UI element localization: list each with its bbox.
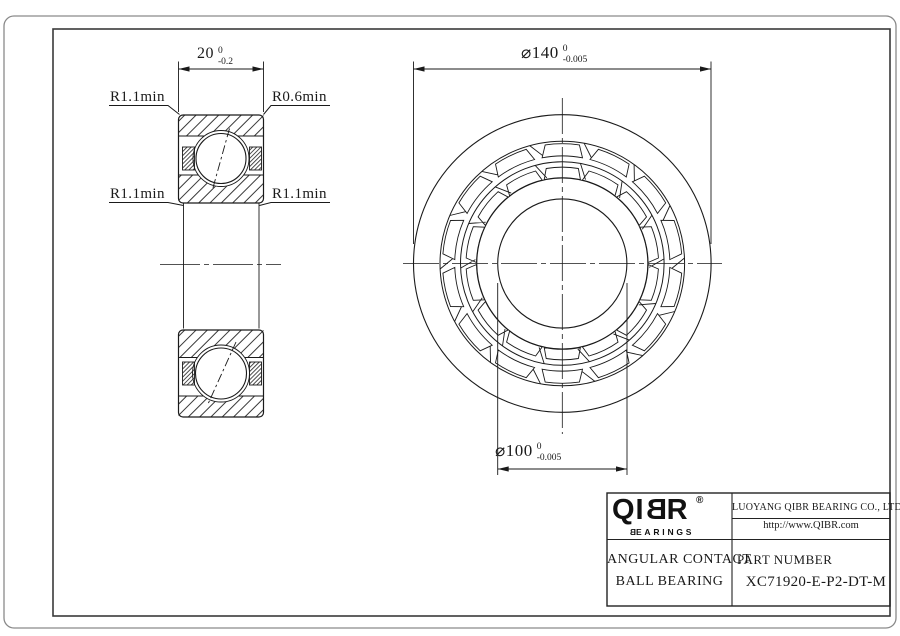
arrowhead-right	[616, 466, 627, 471]
tolerance-lower: -0.005	[537, 453, 562, 464]
cage-section-bottom-right	[250, 362, 262, 385]
product-name-line1: ANGULAR CONTACT	[607, 553, 732, 567]
tolerance-upper: 0	[563, 44, 588, 55]
section-top-block	[179, 115, 264, 203]
company-website: http://www.QIBR.com	[732, 521, 890, 532]
logo-text: QI	[612, 494, 645, 526]
ball-bottom	[196, 348, 247, 399]
company-name: LUOYANG QIBR BEARING CO., LTD	[732, 503, 890, 513]
od-dimension-text: ⌀140 0 -0.005	[521, 44, 587, 66]
arrowhead-left	[179, 66, 190, 71]
cage-section-top-left	[183, 147, 195, 170]
part-number-value: XC71920-E-P2-DT-M	[742, 575, 890, 590]
front-view	[403, 62, 722, 476]
registered-mark: ®	[696, 496, 703, 506]
part-number-label: PART NUMBER	[737, 553, 832, 566]
drawing-sheet: 20 0 -0.2 R1.1min R0.6min R1.1min R1.1mi…	[0, 0, 900, 636]
arrowhead-right	[253, 66, 264, 71]
section-view	[109, 62, 330, 418]
arrowhead-right	[700, 66, 711, 71]
radius-label-top-right: R0.6min	[272, 90, 327, 105]
dimension-value: 20	[197, 46, 214, 62]
radius-label-top-left: R1.1min	[110, 90, 165, 105]
width-dimension-text: 20 0 -0.2	[197, 46, 233, 68]
logo-sub-text: EARINGS	[636, 527, 694, 537]
brand-logo: QIBR ® BEARINGS	[612, 496, 694, 537]
tolerance-upper: 0	[537, 442, 562, 453]
sheet-border	[4, 16, 896, 628]
tolerance-lower: -0.2	[218, 57, 233, 68]
logo-subtitle: BEARINGS	[627, 528, 694, 537]
radius-label-mid-right: R1.1min	[272, 187, 327, 202]
section-bottom-block	[179, 330, 264, 417]
logo-mirrored-b: B	[645, 496, 667, 525]
logo-text-end: R	[667, 494, 689, 526]
arrowhead-left	[414, 66, 425, 71]
dimension-value: ⌀140	[521, 44, 559, 61]
bore-dimension-text: ⌀100 0 -0.005	[495, 442, 561, 464]
tolerance-lower: -0.005	[563, 55, 588, 66]
width-dimension	[179, 62, 264, 113]
radius-label-mid-left: R1.1min	[110, 187, 165, 202]
product-name-line2: BALL BEARING	[607, 575, 732, 589]
tolerance-upper: 0	[218, 46, 233, 57]
cage-section-bottom-left	[183, 362, 195, 385]
logo-sub-mirrored-b: B	[627, 528, 636, 537]
arrowhead-left	[498, 466, 509, 471]
dimension-value: ⌀100	[495, 442, 533, 459]
cage-section-top-right	[250, 147, 262, 170]
